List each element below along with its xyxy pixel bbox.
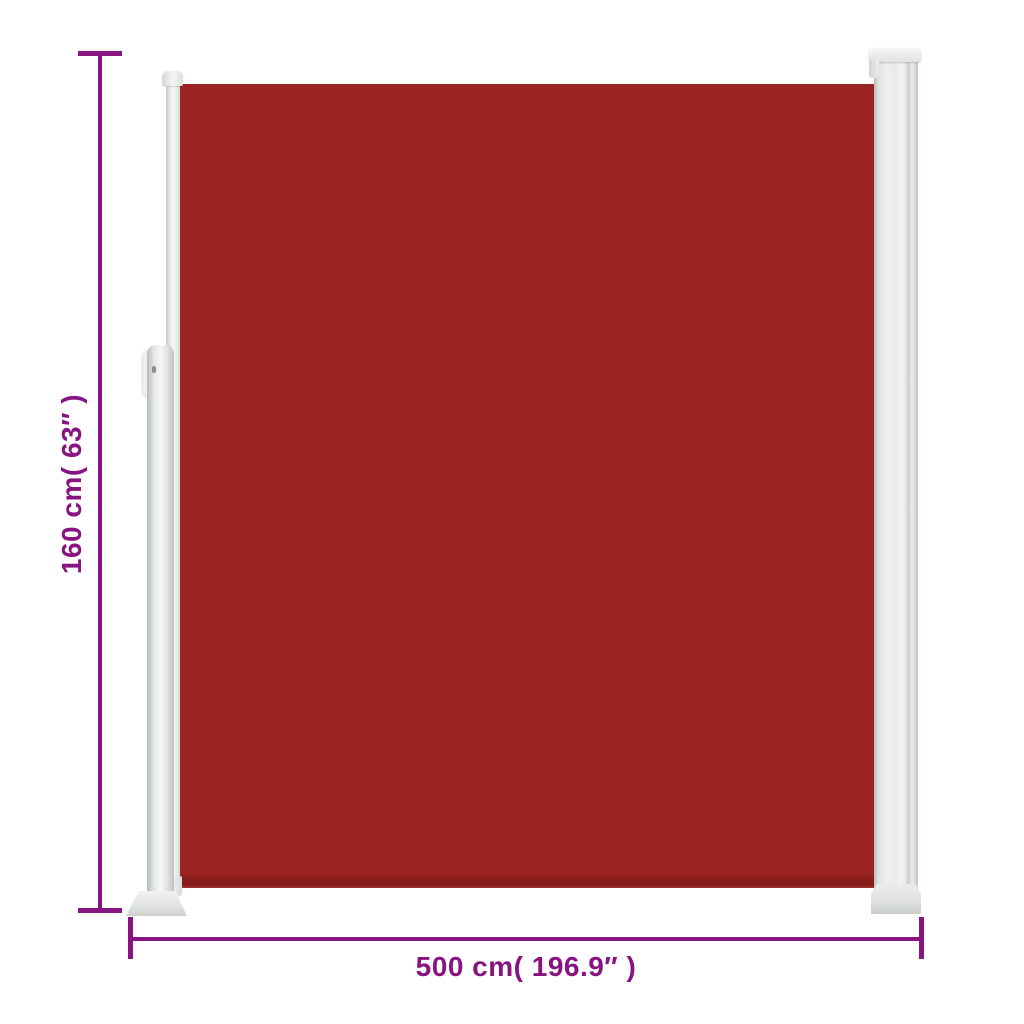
fabric-panel — [179, 84, 878, 888]
fabric-bottom-shadow — [179, 872, 878, 888]
cassette-foot — [871, 884, 921, 914]
width-dimension-cap-left — [128, 917, 133, 959]
support-post — [147, 345, 174, 895]
width-dimension-label: 500 cm( 196.9″ ) — [326, 952, 726, 982]
front-profile-bar-cap — [162, 71, 183, 86]
cassette-mount-lip — [869, 60, 879, 78]
post-screw — [152, 366, 156, 373]
height-dimension-cap-bottom — [78, 908, 122, 913]
height-dimension-line — [98, 53, 102, 913]
width-dimension-line — [130, 937, 922, 941]
height-dimension-cap-top — [78, 51, 122, 56]
cassette-column — [874, 56, 918, 902]
width-dimension-cap-right — [919, 917, 924, 959]
product-dimension-diagram: 160 cm( 63″ ) 500 cm( 196.9″ ) — [0, 0, 1024, 1024]
height-dimension-label: 160 cm( 63″ ) — [57, 334, 87, 634]
